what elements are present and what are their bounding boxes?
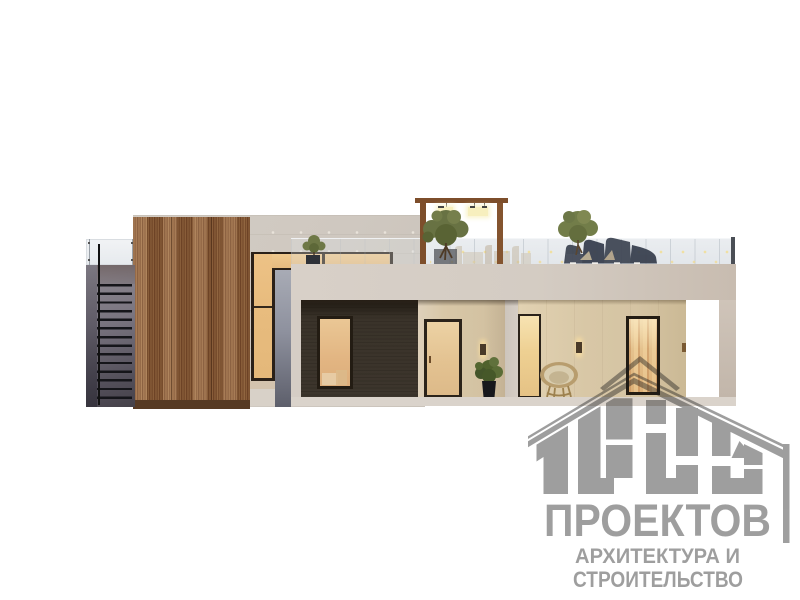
svg-text:СТРОИТЕЛЬСТВО: СТРОИТЕЛЬСТВО [573,567,743,592]
svg-text:ПРОЕКТОВ: ПРОЕКТОВ [544,495,771,546]
svg-text:АРХИТЕКТУРА И: АРХИТЕКТУРА И [575,545,740,568]
